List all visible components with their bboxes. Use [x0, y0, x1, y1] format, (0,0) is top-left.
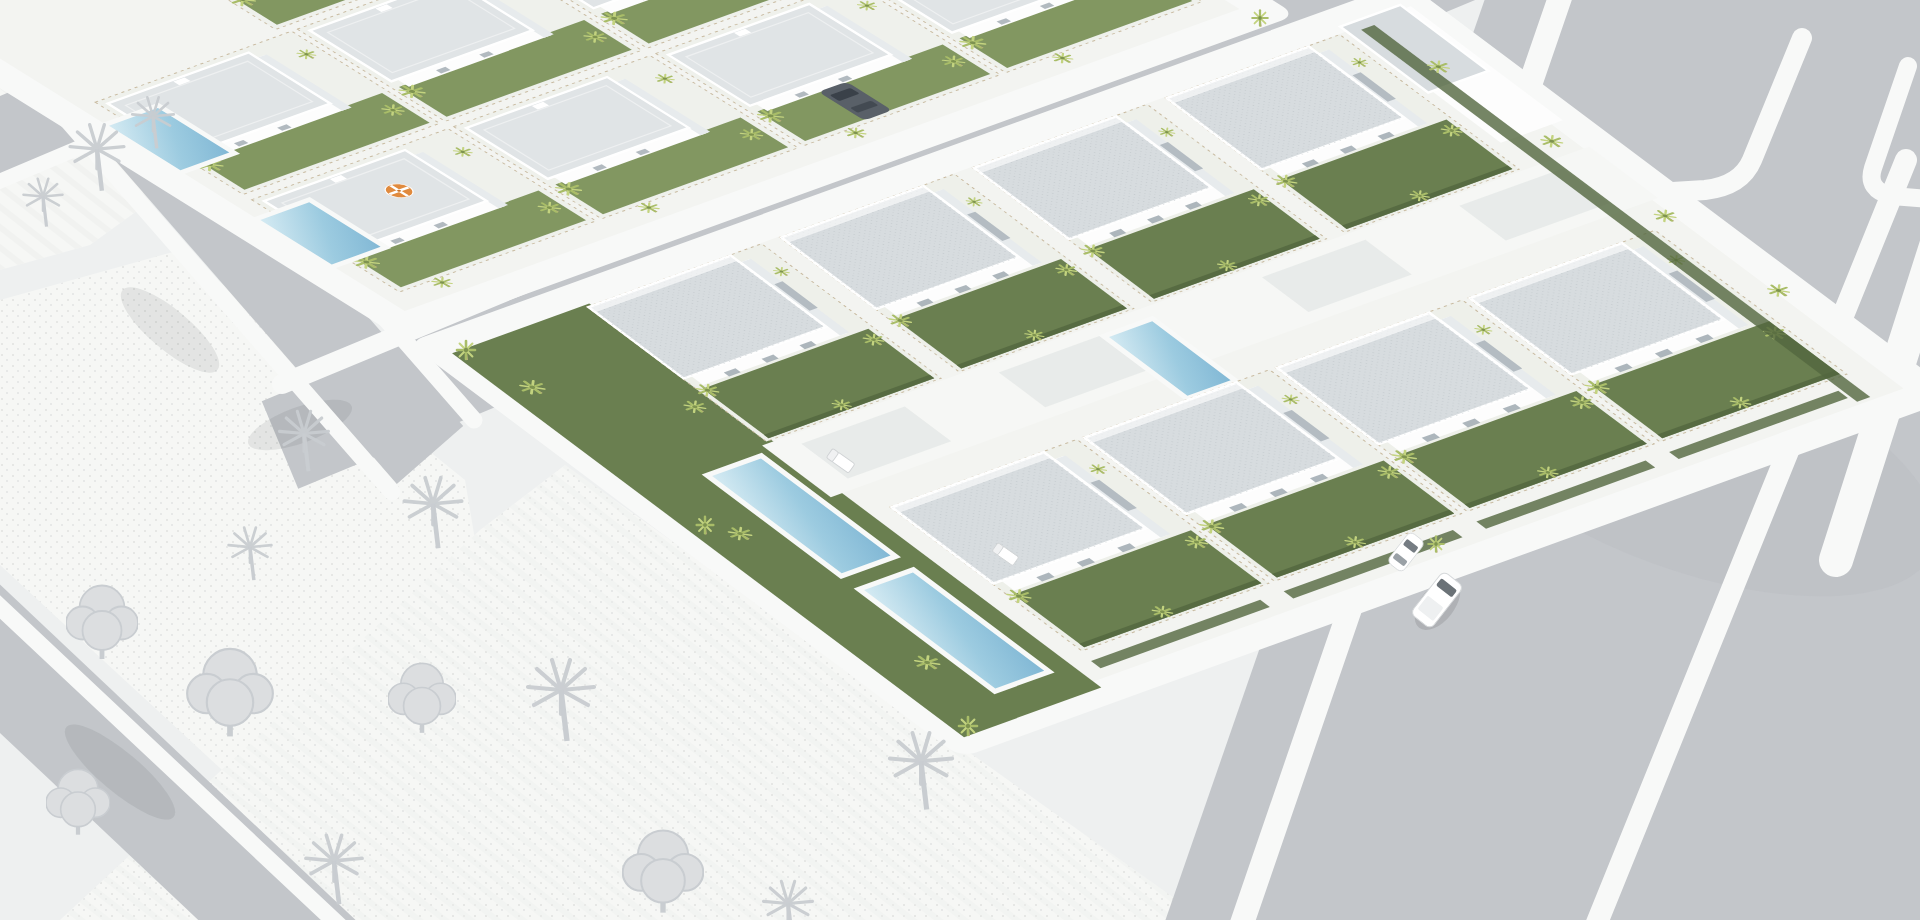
aerial-3d-render	[0, 0, 1920, 920]
palm-tree	[457, 341, 475, 360]
palm-tree	[697, 517, 714, 535]
palm-tree	[959, 717, 977, 736]
palm-tree	[1428, 536, 1443, 552]
render-viewport	[0, 0, 1920, 920]
palm-tree	[1252, 10, 1267, 26]
